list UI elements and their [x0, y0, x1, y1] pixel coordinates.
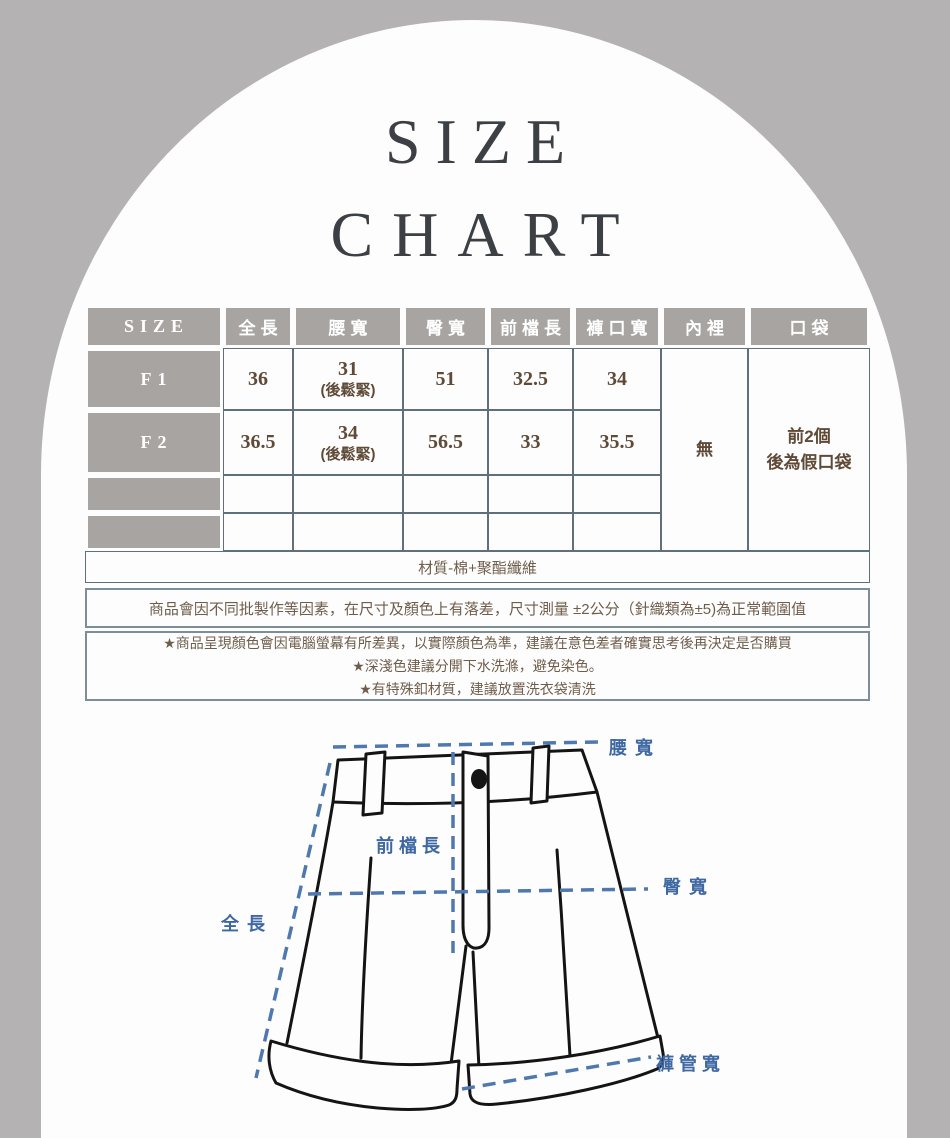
leg-opening-label: 褲管寬	[656, 1053, 725, 1074]
size-table: SIZE 全長 腰寬 臀寬 前檔長 褲口寬 內裡 口袋 F1 36 31 (後鬆…	[85, 305, 870, 583]
tolerance-note: 商品會因不同批製作等因素，在尺寸及顏色上有落差，尺寸測量 ±2公分（針織類為±5…	[85, 588, 870, 628]
f2-front-rise: 33	[488, 410, 573, 475]
button	[471, 769, 487, 789]
row-label-empty-2	[85, 513, 223, 551]
front-rise-label: 前檔長	[376, 835, 445, 856]
size-chart-page: SIZE CHART SIZE 全長 腰寬 臀寬 前檔長 褲口寬 內裡 口袋 F…	[0, 0, 950, 1138]
empty-cell	[403, 475, 488, 513]
f1-leg-opening: 34	[573, 348, 661, 410]
title-line2: CHART	[330, 199, 638, 270]
col-header-front-rise: 前檔長	[488, 305, 573, 348]
full-length-label: 全長	[220, 913, 273, 934]
f2-leg-opening: 35.5	[573, 410, 661, 475]
care-notes: ★商品呈現顏色會因電腦螢幕有所差異，以實際顏色為準，建議在意色差者確實思考後再決…	[85, 631, 870, 701]
empty-cell	[403, 513, 488, 551]
empty-cell	[573, 475, 661, 513]
title-line1: SIZE	[385, 106, 580, 177]
pocket-line1: 前2個	[787, 424, 830, 450]
empty-cell	[573, 513, 661, 551]
empty-cell	[293, 475, 403, 513]
hip-line	[308, 889, 648, 894]
f2-waist: 34 (後鬆緊)	[293, 410, 403, 475]
col-header-size: SIZE	[85, 305, 223, 348]
f1-waist: 31 (後鬆緊)	[293, 348, 403, 410]
hip-label: 臀寬	[663, 876, 715, 897]
f2-waist-note: (後鬆緊)	[321, 445, 376, 464]
row-label-f2: F2	[85, 410, 223, 475]
f1-hip: 51	[403, 348, 488, 410]
care-note-line: ★深淺色建議分開下水洗滌，避免染色。	[352, 655, 603, 678]
waist-label: 腰寬	[608, 737, 661, 758]
col-header-waist: 腰寬	[293, 305, 403, 348]
material-row: 材質-棉+聚酯纖維	[85, 551, 870, 583]
belt-loop-left	[363, 752, 385, 815]
pocket-cell: 前2個 後為假口袋	[748, 348, 870, 551]
empty-cell	[293, 513, 403, 551]
f2-hip: 56.5	[403, 410, 488, 475]
waist-line	[333, 742, 599, 747]
lining-value: 無	[696, 437, 713, 463]
col-header-hip: 臀寬	[403, 305, 488, 348]
f1-waist-value: 31	[338, 358, 358, 381]
col-header-pocket: 口袋	[748, 305, 870, 348]
f1-waist-note: (後鬆緊)	[321, 381, 376, 400]
f1-front-rise: 32.5	[488, 348, 573, 410]
empty-cell	[223, 513, 293, 551]
care-note-line: ★商品呈現顏色會因電腦螢幕有所差異，以實際顏色為準，建議在意色差者確實思考後再決…	[163, 632, 792, 655]
care-note-line: ★有特殊釦材質，建議放置洗衣袋清洗	[359, 678, 596, 701]
shorts-measurement-diagram: 腰寬 前檔長 臀寬 全長 褲管寬	[200, 715, 760, 1115]
row-label-empty-1	[85, 475, 223, 513]
f1-full-length: 36	[223, 348, 293, 410]
lining-cell: 無	[661, 348, 748, 551]
col-header-full-length: 全長	[223, 305, 293, 348]
col-header-leg-opening: 褲口寬	[573, 305, 661, 348]
f2-full-length: 36.5	[223, 410, 293, 475]
shorts-drawing	[269, 746, 663, 1110]
empty-cell	[488, 475, 573, 513]
pocket-line2: 後為假口袋	[767, 450, 852, 476]
col-header-lining: 內裡	[661, 305, 748, 348]
page-title: SIZE CHART	[0, 104, 950, 290]
belt-loop-right	[531, 746, 549, 803]
row-label-f1: F1	[85, 348, 223, 410]
f2-waist-value: 34	[338, 422, 358, 445]
empty-cell	[223, 475, 293, 513]
left-cuff	[269, 1041, 459, 1110]
empty-cell	[488, 513, 573, 551]
